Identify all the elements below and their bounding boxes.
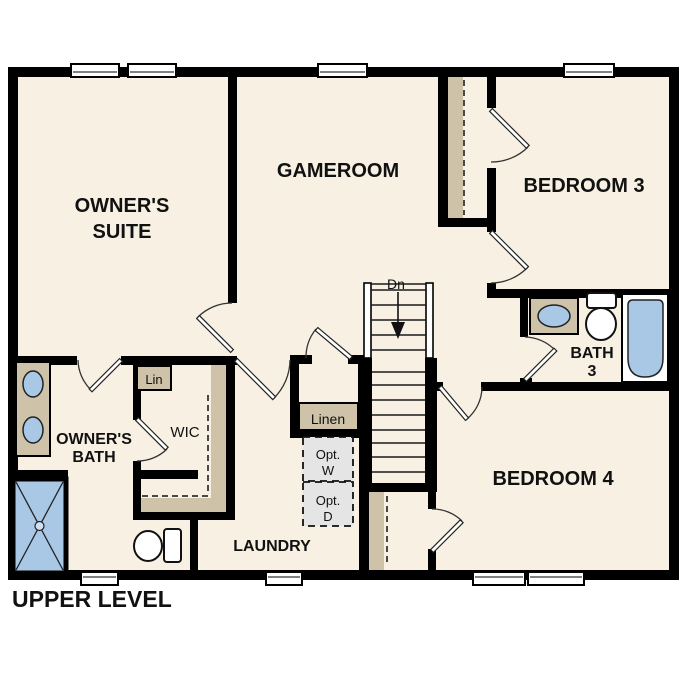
- bedroom4-label: BEDROOM 4: [492, 468, 614, 490]
- window: [473, 572, 525, 585]
- wic-label: WIC: [170, 424, 199, 441]
- opt-dryer-label-line2: D: [323, 509, 332, 524]
- stair-rail-right: [426, 283, 433, 358]
- room-owners-suite: [18, 77, 228, 303]
- gameroom-label: GAMEROOM: [277, 160, 399, 182]
- sink-icon: [538, 305, 570, 327]
- window: [564, 64, 614, 77]
- laundry-label: LAUNDRY: [233, 538, 311, 555]
- window: [266, 572, 302, 585]
- floor-plan-upper-level: Dn: [0, 0, 687, 687]
- wic-shelf-east: [211, 365, 226, 512]
- lin-closet-label: Lin: [145, 372, 162, 387]
- toilet-icon: [134, 529, 181, 562]
- wic-shelf-south: [141, 498, 226, 512]
- bedroom3-label: BEDROOM 3: [523, 175, 644, 197]
- opt-washer-label-line1: Opt.: [316, 447, 341, 462]
- window: [128, 64, 176, 77]
- toilet-icon: [586, 293, 616, 340]
- sink-icon: [23, 417, 43, 443]
- window: [318, 64, 367, 77]
- owners-suite-label-line1: OWNER'S: [75, 195, 170, 217]
- floor-plan-page: Dn: [0, 0, 687, 687]
- opt-dryer-label-line1: Opt.: [316, 493, 341, 508]
- opt-washer-label-line2: W: [322, 463, 335, 478]
- bedroom3-closet-shelf: [448, 77, 463, 218]
- window: [528, 572, 584, 585]
- owners-bath-label-line2: BATH: [72, 449, 115, 466]
- window: [71, 64, 119, 77]
- linen-closet-label: Linen: [311, 411, 345, 427]
- shower-icon: [13, 479, 66, 573]
- sink-icon: [23, 371, 43, 397]
- bath3-vanity: [530, 298, 578, 334]
- bath3-label-line2: 3: [588, 363, 597, 380]
- bath3-label-line1: BATH: [570, 345, 613, 362]
- bathtub-icon: [622, 294, 668, 382]
- window: [81, 572, 118, 585]
- stairs-dn-label: Dn: [387, 276, 405, 292]
- owners-bath-vanity: [16, 362, 50, 456]
- owners-bath-label-line1: OWNER'S: [56, 431, 132, 448]
- owners-suite-label-line2: SUITE: [93, 221, 152, 243]
- stair-rail-left: [364, 283, 371, 358]
- page-title: UPPER LEVEL: [12, 586, 172, 612]
